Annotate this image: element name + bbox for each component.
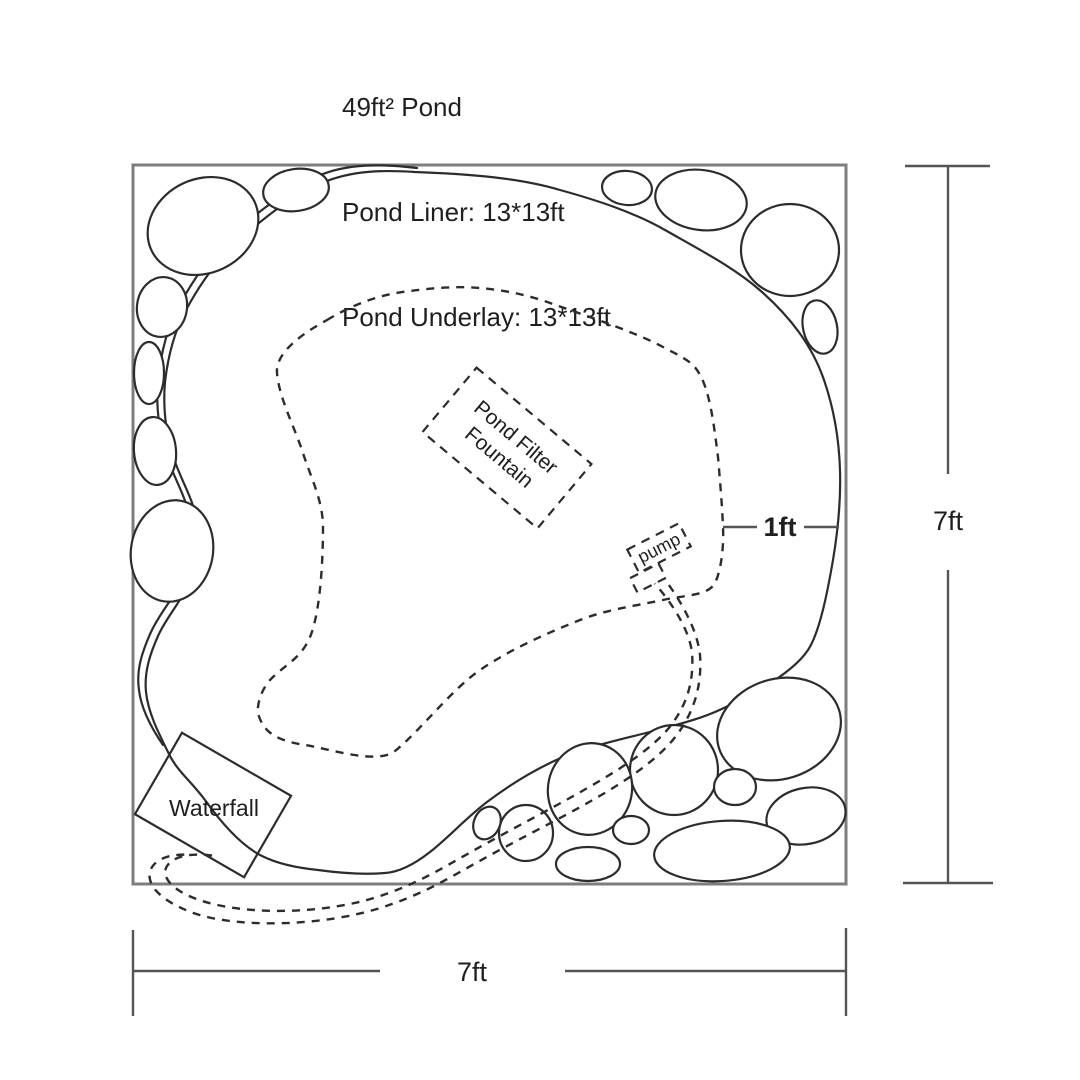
rock [131, 415, 179, 486]
pond-filter-fountain-outline [423, 368, 592, 529]
pump-unit: pump [627, 523, 690, 592]
height-dimension: 7ft [903, 166, 993, 883]
pond-plan-page: 49ft² Pond Pond Liner: 13*13ft Pond Unde… [0, 0, 1080, 1080]
edge-offset-dimension: 1ft [723, 512, 839, 542]
rock [260, 165, 331, 216]
offset-dimension-label: 1ft [764, 512, 797, 542]
rock-border [123, 159, 855, 885]
rock [123, 494, 221, 609]
height-dimension-label: 7ft [933, 506, 964, 536]
waterfall-unit: Waterfall [135, 733, 291, 877]
rock [131, 159, 274, 292]
rock [601, 169, 654, 207]
width-dimension: 7ft [133, 928, 846, 1016]
rock [651, 164, 750, 236]
pond-diagram: Pond Filter Fountain pump Waterfall 1ft [0, 0, 1080, 1080]
rock [134, 342, 164, 404]
waterfall-label: Waterfall [169, 795, 259, 821]
pond-filter-fountain-box: Pond Filter Fountain [423, 368, 592, 529]
rock [798, 297, 842, 357]
pond-shelf-outline [258, 287, 723, 756]
rock [613, 816, 649, 844]
rock [556, 847, 620, 881]
rock [741, 204, 839, 296]
rock [652, 816, 792, 885]
width-dimension-label: 7ft [457, 957, 488, 987]
rock [714, 769, 756, 805]
rock [133, 274, 191, 340]
